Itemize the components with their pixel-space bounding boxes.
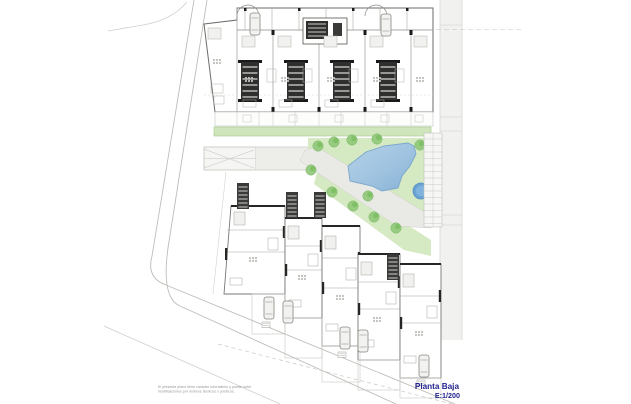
car-icon — [358, 330, 368, 352]
plan-title: Planta Baja — [415, 382, 460, 391]
sunbeds-area — [424, 133, 442, 227]
stairs-icon — [286, 192, 298, 218]
site-plan: El presente plano tiene carácter informa… — [0, 0, 631, 404]
access-ramp — [204, 147, 256, 170]
disclaimer-line-1: El presente plano tiene carácter informa… — [158, 385, 252, 389]
tree-icon — [372, 134, 382, 144]
tree-icon — [306, 165, 316, 175]
hedge-strip — [214, 127, 431, 136]
tree-icon — [347, 135, 357, 145]
tree-icon — [363, 191, 373, 201]
tree-icon — [327, 187, 337, 197]
plan-scale: E:1/200 — [435, 391, 460, 400]
disclaimer-line-2: modificaciones por motivos técnicos o ju… — [158, 390, 235, 394]
tree-icon — [313, 141, 323, 151]
tree-icon — [329, 137, 339, 147]
right-road — [440, 0, 462, 340]
ref-box — [262, 322, 270, 328]
tree-icon — [369, 212, 379, 222]
car-icon — [250, 13, 260, 35]
plan-sheet: El presente plano tiene carácter informa… — [0, 0, 631, 404]
car-icon — [381, 14, 391, 36]
unit-1 — [224, 206, 285, 294]
car-icon — [419, 355, 429, 377]
terrace-strip — [215, 112, 433, 126]
stairs-icon — [314, 192, 326, 218]
tree-icon — [348, 201, 358, 211]
stairs-icon — [387, 254, 399, 280]
tree-icon — [415, 140, 425, 150]
car-icon — [264, 297, 274, 319]
car-icon — [283, 301, 293, 323]
stairs-icon — [237, 183, 249, 209]
tree-icon — [391, 223, 401, 233]
car-icon — [340, 327, 350, 349]
ref-box — [338, 352, 346, 358]
top-apartment-block — [204, 5, 433, 126]
